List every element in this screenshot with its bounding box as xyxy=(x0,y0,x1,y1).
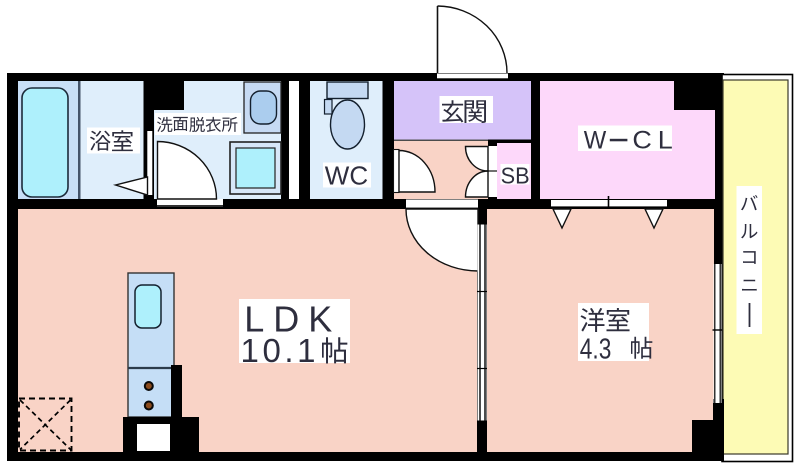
svg-text:C: C xyxy=(632,127,652,155)
svg-text:4.3: 4.3 xyxy=(580,333,612,365)
svg-text:10.1: 10.1 xyxy=(241,332,316,369)
svg-text:SB: SB xyxy=(501,163,530,189)
svg-text:WC: WC xyxy=(325,161,368,191)
svg-text:W: W xyxy=(584,127,607,155)
svg-text:L: L xyxy=(658,127,673,155)
